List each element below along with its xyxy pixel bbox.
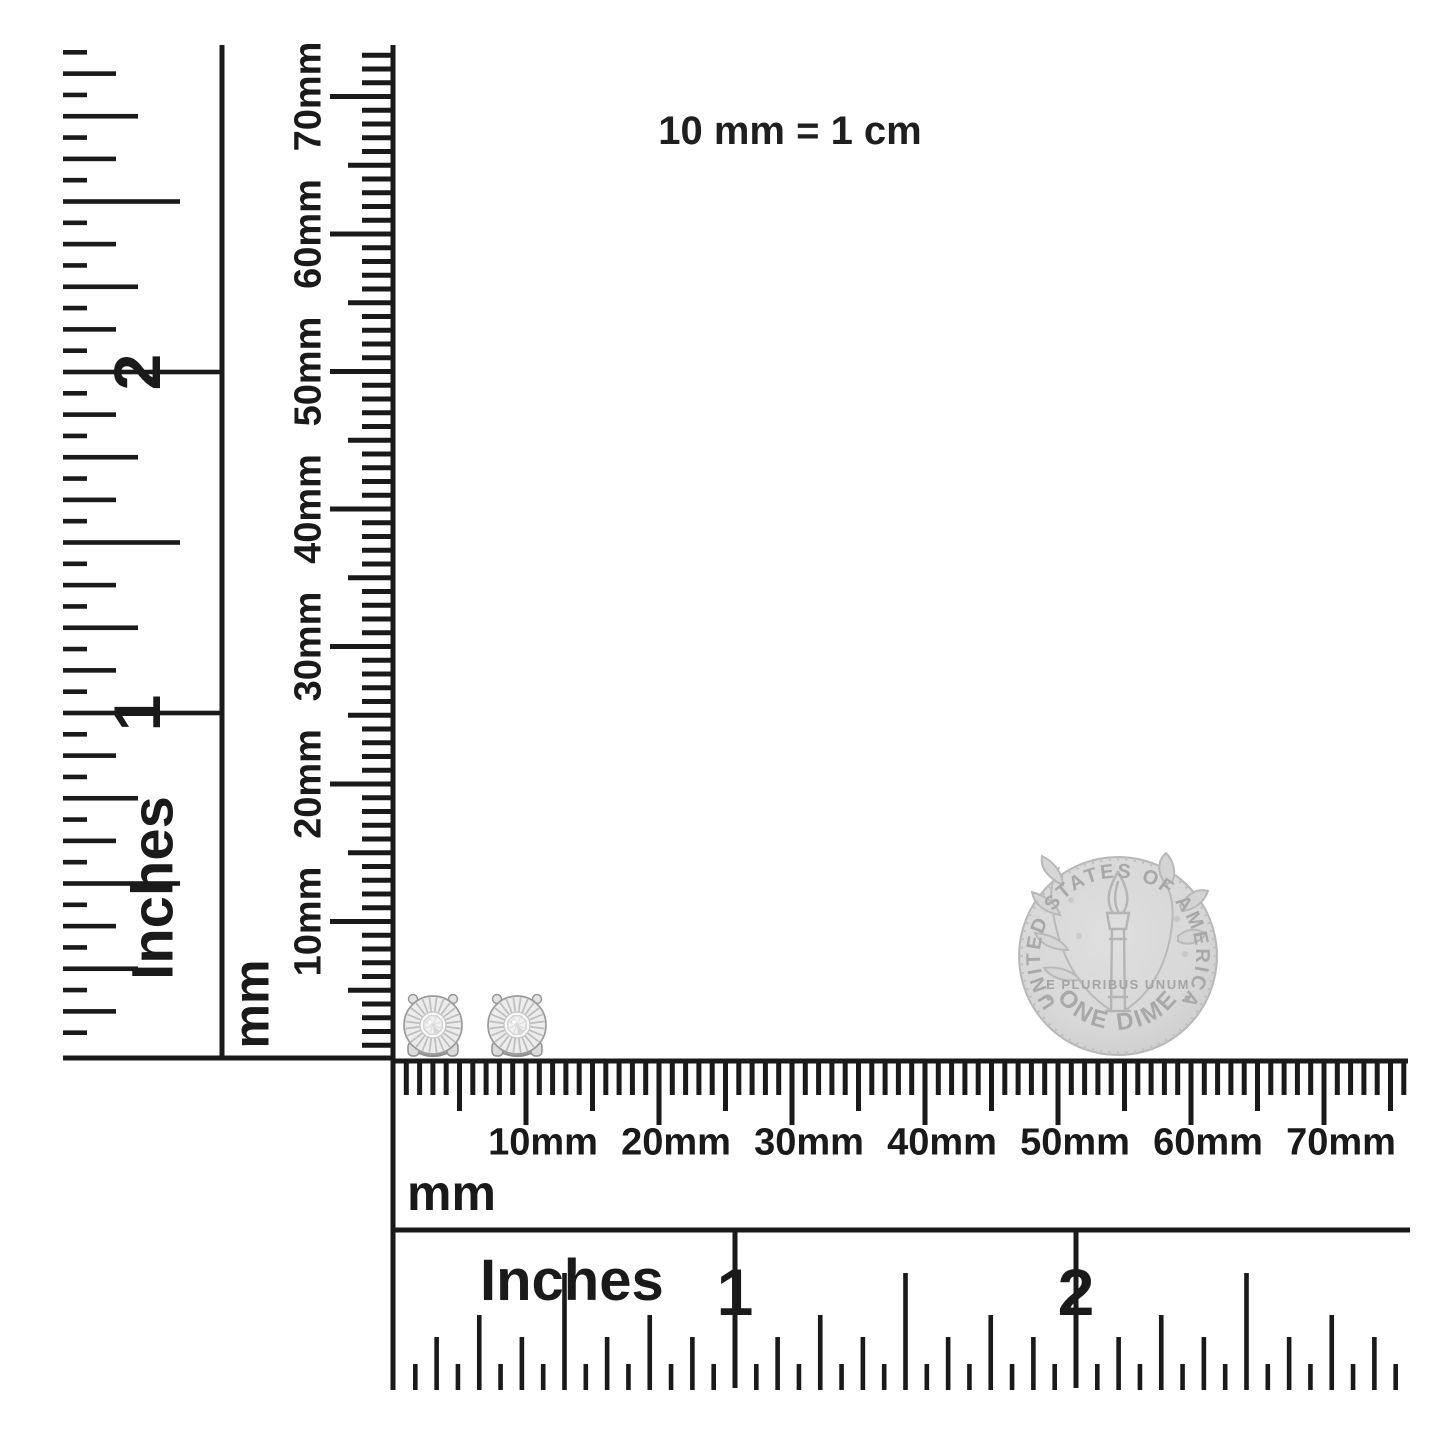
mm-label: 60mm — [1153, 1121, 1263, 1163]
separator-dot — [1184, 995, 1189, 1000]
mm-label: 70mm — [1286, 1121, 1396, 1163]
mm-label: 10mm — [287, 867, 329, 977]
mm-label: 30mm — [287, 592, 329, 702]
separator-dot — [1046, 995, 1051, 1000]
mm-label: 10mm — [488, 1121, 598, 1163]
measurement-diagram: 12 10mm20mm30mm40mm50mm60mm70mm 10mm20mm… — [0, 0, 1445, 1445]
inch-numeral: 2 — [1058, 1255, 1095, 1329]
diamond-stud-earring — [488, 995, 546, 1057]
inch-numeral: 1 — [717, 1255, 754, 1329]
horizontal-mm-unit-label: mm — [407, 1165, 496, 1221]
mm-label: 20mm — [621, 1121, 731, 1163]
vertical-mm-unit-label: mm — [224, 960, 280, 1049]
vertical-rulers-baseline — [63, 1056, 395, 1061]
diamond-stud-earrings — [404, 995, 546, 1057]
mm-label: 50mm — [287, 317, 329, 427]
mm-label: 70mm — [287, 42, 329, 152]
mm-label: 60mm — [287, 179, 329, 289]
ruler-scene: 12 10mm20mm30mm40mm50mm60mm70mm 10mm20mm… — [0, 0, 1445, 1445]
vertical-inches-unit-label: Inches — [120, 796, 185, 980]
diamond-stud-earring — [404, 995, 462, 1057]
sparkle-icon — [428, 1020, 432, 1024]
mm-label: 50mm — [1020, 1121, 1130, 1163]
vertical-inches-ruler: 12 — [63, 45, 395, 1061]
inch-numeral: 2 — [100, 354, 174, 391]
mm-label: 40mm — [287, 454, 329, 564]
inch-numeral: 1 — [100, 695, 174, 732]
vertical-inches-ruler-border — [220, 45, 225, 1058]
sparkle-icon — [512, 1020, 516, 1024]
mm-label: 30mm — [754, 1121, 864, 1163]
scale-note: 10 mm = 1 cm — [658, 109, 922, 153]
vertical-mm-ruler: 10mm20mm30mm40mm50mm60mm70mm — [287, 42, 395, 1390]
horizontal-mm-ruler-edge — [393, 1059, 1408, 1064]
horizontal-inches-unit-label: Inches — [480, 1248, 664, 1313]
mm-label: 20mm — [287, 729, 329, 839]
horizontal-mm-ruler: 10mm20mm30mm40mm50mm60mm70mm — [393, 1059, 1408, 1164]
dime-coin: UNITED STATES OF AMERICA E PLURIBUS UNUM… — [1019, 853, 1218, 1055]
horizontal-inches-ruler-edge — [393, 1228, 1410, 1233]
mm-label: 40mm — [887, 1121, 997, 1163]
